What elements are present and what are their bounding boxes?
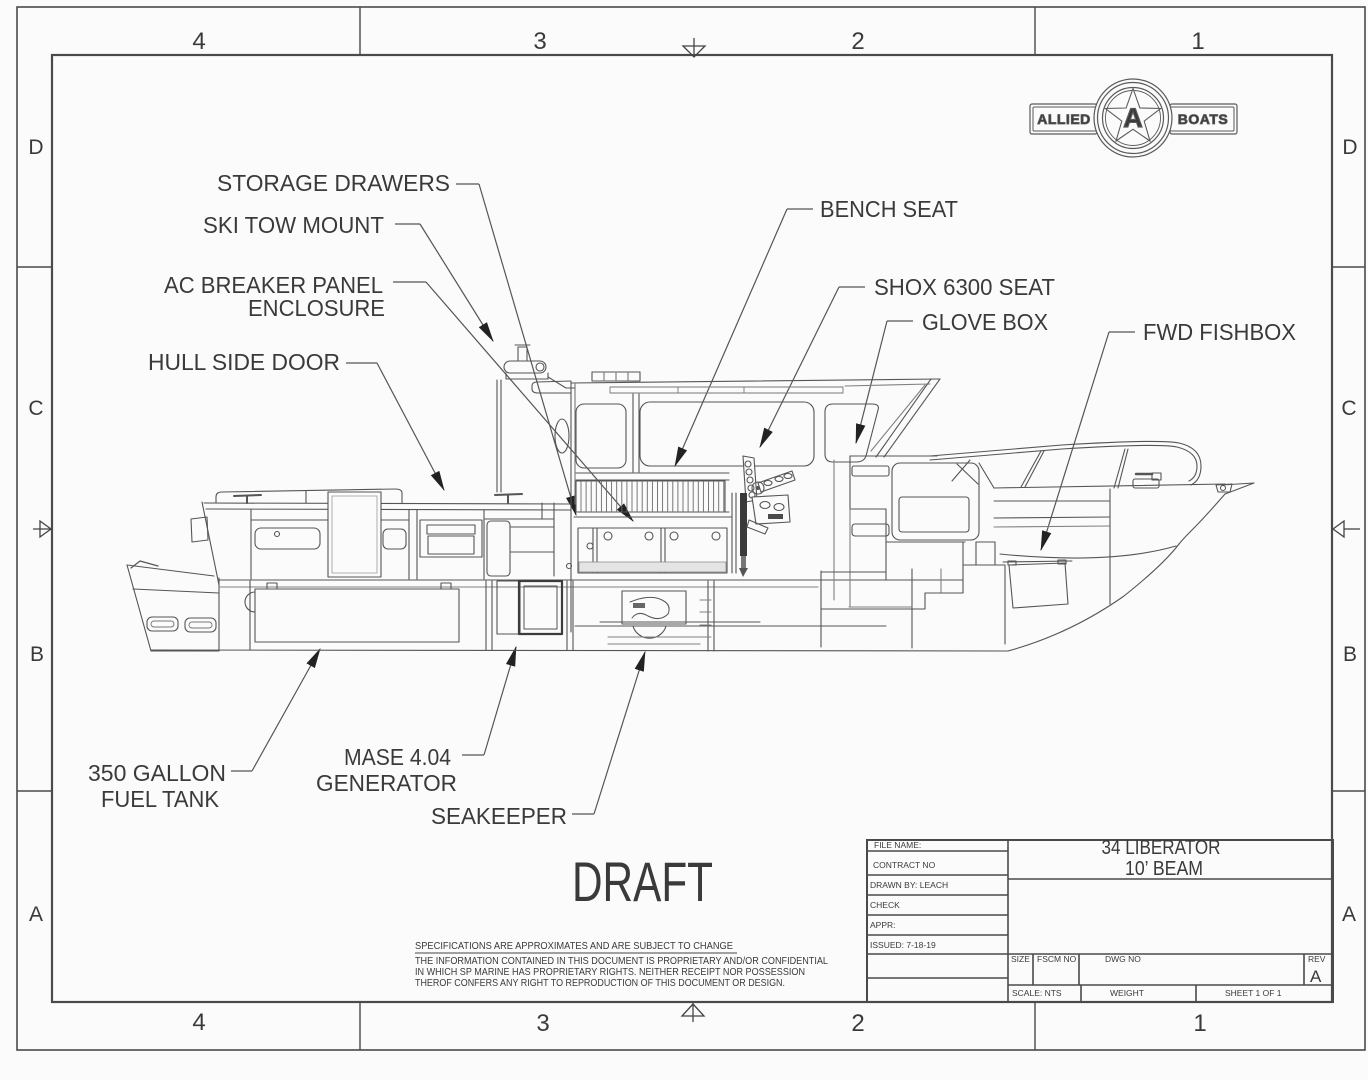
svg-text:4: 4 xyxy=(192,28,205,55)
svg-text:D: D xyxy=(28,136,43,159)
svg-text:ENCLOSURE: ENCLOSURE xyxy=(248,295,385,321)
svg-text:D: D xyxy=(1342,136,1357,159)
svg-text:SHEET 1 OF 1: SHEET 1 OF 1 xyxy=(1225,988,1282,998)
svg-text:CHECK: CHECK xyxy=(870,900,900,910)
svg-text:2: 2 xyxy=(851,28,864,55)
svg-text:3: 3 xyxy=(536,1010,549,1037)
svg-text:B: B xyxy=(1343,643,1357,666)
svg-text:DRAFT: DRAFT xyxy=(572,850,713,913)
svg-text:1: 1 xyxy=(1191,28,1204,55)
svg-text:SHOX 6300 SEAT: SHOX 6300 SEAT xyxy=(874,274,1055,300)
svg-text:A: A xyxy=(1123,103,1143,133)
svg-text:STORAGE DRAWERS: STORAGE DRAWERS xyxy=(217,170,450,196)
svg-text:FSCM NO: FSCM NO xyxy=(1037,954,1077,964)
svg-text:IN WHICH SP MARINE HAS PROPRIE: IN WHICH SP MARINE HAS PROPRIETARY RIGHT… xyxy=(415,967,805,978)
svg-text:A: A xyxy=(1342,903,1356,926)
svg-text:THEROF CONFERS ANY RIGHT TO RE: THEROF CONFERS ANY RIGHT TO REPRODUCTION… xyxy=(415,978,785,989)
svg-text:DRAWN BY: LEACH: DRAWN BY: LEACH xyxy=(870,880,948,890)
svg-text:SEAKEEPER: SEAKEEPER xyxy=(431,803,567,829)
svg-text:APPR:: APPR: xyxy=(870,920,896,930)
svg-text:C: C xyxy=(1341,397,1356,420)
svg-text:4: 4 xyxy=(192,1009,205,1036)
svg-text:THE INFORMATION CONTAINED IN T: THE INFORMATION CONTAINED IN THIS DOCUME… xyxy=(415,956,828,967)
svg-text:DWG NO: DWG NO xyxy=(1105,954,1141,964)
svg-text:SCALE: NTS: SCALE: NTS xyxy=(1012,988,1062,998)
svg-text:REV: REV xyxy=(1308,954,1326,964)
svg-text:FUEL TANK: FUEL TANK xyxy=(101,786,220,812)
svg-text:350 GALLON: 350 GALLON xyxy=(88,760,226,786)
svg-text:ISSUED: 7-18-19: ISSUED: 7-18-19 xyxy=(870,940,936,950)
svg-text:1: 1 xyxy=(1193,1010,1206,1037)
svg-text:SKI TOW MOUNT: SKI TOW MOUNT xyxy=(203,212,384,238)
svg-text:SIZE: SIZE xyxy=(1011,954,1030,964)
svg-text:SPECIFICATIONS ARE APPROXIMATE: SPECIFICATIONS ARE APPROXIMATES AND ARE … xyxy=(415,941,733,952)
svg-text:C: C xyxy=(28,397,43,420)
svg-text:B: B xyxy=(30,643,44,666)
svg-text:FWD FISHBOX: FWD FISHBOX xyxy=(1143,319,1296,345)
svg-text:GLOVE BOX: GLOVE BOX xyxy=(922,309,1048,335)
svg-text:ALLIED: ALLIED xyxy=(1037,111,1091,127)
svg-text:HULL SIDE DOOR: HULL SIDE DOOR xyxy=(148,349,340,375)
svg-text:BOATS: BOATS xyxy=(1178,111,1228,127)
svg-text:GENERATOR: GENERATOR xyxy=(316,770,457,796)
svg-text:34 LIBERATOR: 34 LIBERATOR xyxy=(1102,837,1221,859)
svg-text:10’ BEAM: 10’ BEAM xyxy=(1125,858,1203,880)
svg-text:A: A xyxy=(29,903,43,926)
svg-text:FILE NAME:: FILE NAME: xyxy=(874,840,921,850)
svg-text:3: 3 xyxy=(533,28,546,55)
svg-text:A: A xyxy=(1310,967,1322,986)
svg-text:MASE 4.04: MASE 4.04 xyxy=(344,744,451,770)
svg-text:2: 2 xyxy=(851,1010,864,1037)
svg-text:BENCH SEAT: BENCH SEAT xyxy=(820,196,958,222)
svg-text:WEIGHT: WEIGHT xyxy=(1110,988,1144,998)
svg-text:CONTRACT NO: CONTRACT NO xyxy=(873,860,936,870)
